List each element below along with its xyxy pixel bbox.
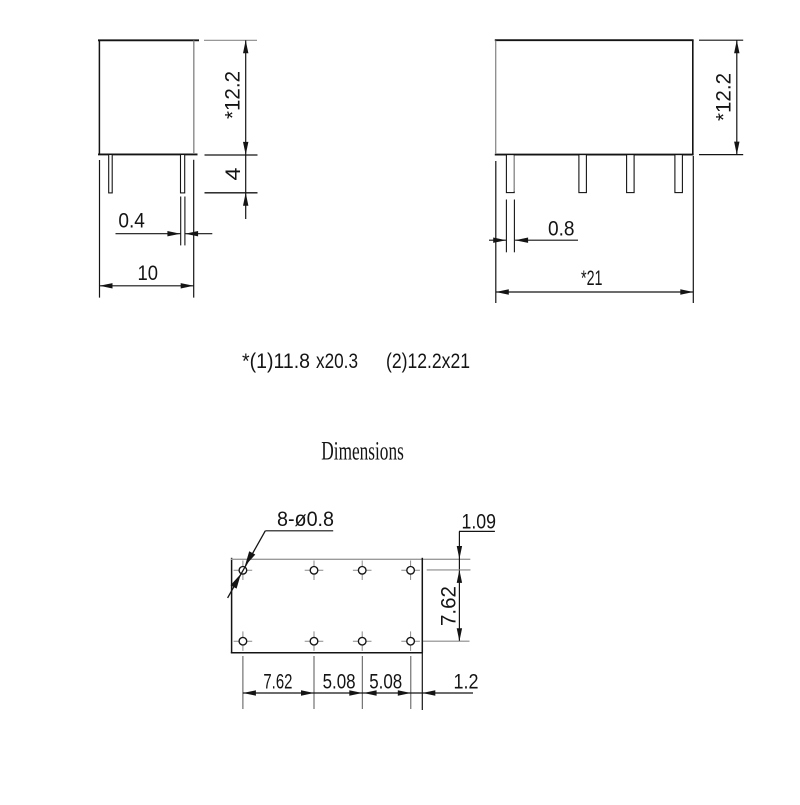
svg-text:*21: *21	[581, 266, 603, 290]
svg-text:4: 4	[221, 167, 245, 180]
svg-text:*(1)11.8: *(1)11.8	[242, 349, 310, 373]
svg-text:1.09: 1.09	[462, 509, 497, 533]
svg-text:5.08: 5.08	[369, 669, 402, 693]
svg-text:*12.2: *12.2	[712, 73, 736, 121]
svg-text:0.8: 0.8	[548, 217, 575, 241]
svg-text:x20.3: x20.3	[316, 349, 358, 373]
svg-text:(2)12.2x21: (2)12.2x21	[386, 349, 470, 373]
svg-text:Dimensions: Dimensions	[321, 436, 404, 466]
svg-text:1.2: 1.2	[454, 669, 479, 693]
svg-text:7.62: 7.62	[263, 669, 292, 693]
svg-text:5.08: 5.08	[323, 669, 356, 693]
svg-text:*12.2: *12.2	[221, 71, 245, 119]
svg-text:7.62: 7.62	[436, 586, 460, 626]
svg-text:0.4: 0.4	[118, 208, 145, 232]
svg-text:10: 10	[138, 261, 159, 285]
svg-text:8-ø0.8: 8-ø0.8	[277, 507, 334, 531]
